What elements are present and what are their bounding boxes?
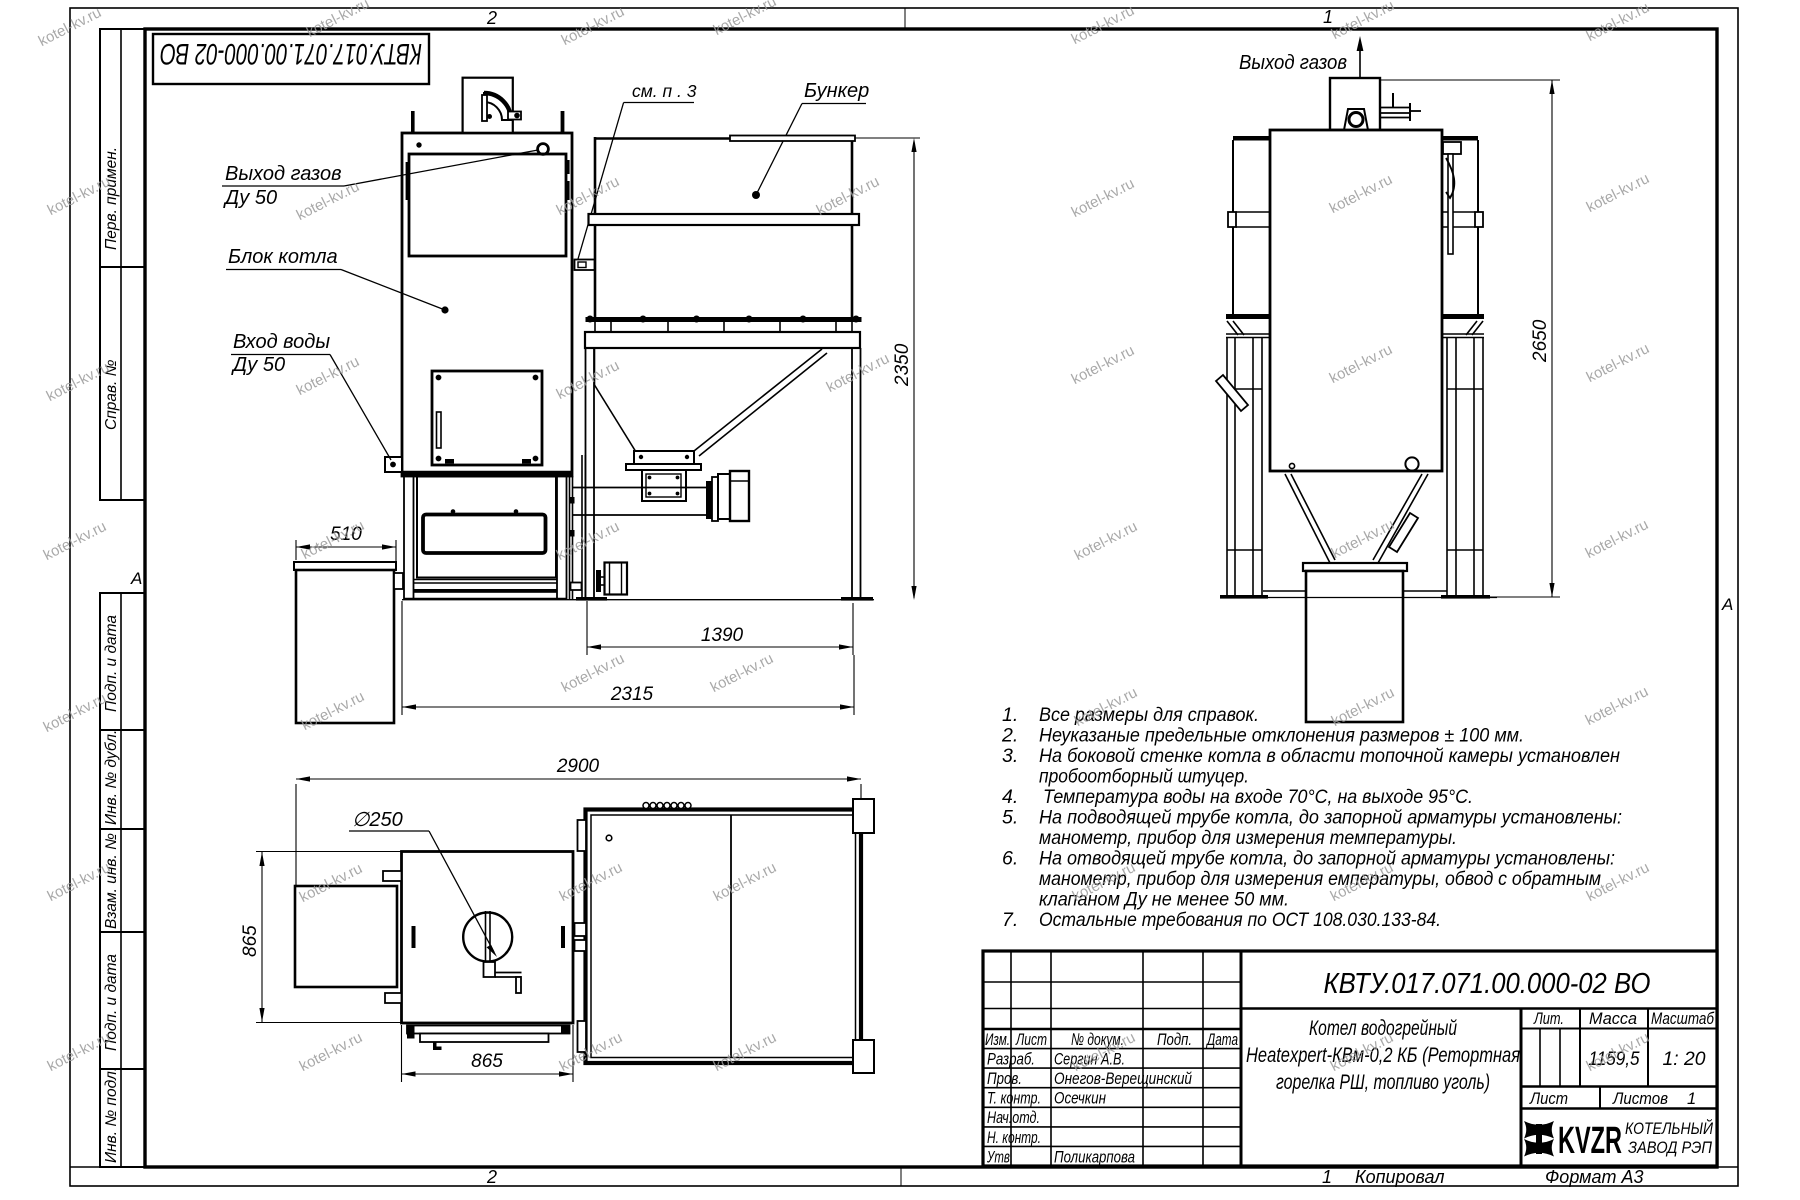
svg-text:Инв. № дубл.: Инв. № дубл. [103,730,120,825]
svg-text:ЗАВОД РЭП: ЗАВОД РЭП [1628,1138,1713,1157]
svg-text:865: 865 [471,1051,503,1072]
svg-text:865: 865 [240,925,261,957]
svg-text:Т. контр.: Т. контр. [987,1089,1041,1108]
svg-text:1: 1 [1687,1090,1696,1108]
svg-text:KVZR: KVZR [1558,1120,1622,1162]
svg-text:Формат А3: Формат А3 [1545,1167,1644,1187]
svg-text:Выход газов: Выход газов [1239,52,1347,74]
svg-text:горелка РШ, топливо уголь): горелка РШ, топливо уголь) [1276,1071,1490,1094]
svg-text:2: 2 [486,8,497,28]
svg-text:Пров.: Пров. [987,1069,1022,1088]
svg-text:Бункер: Бункер [804,80,869,102]
svg-text:Поликарпова: Поликарпова [1054,1147,1135,1166]
svg-text:Копировал: Копировал [1355,1167,1445,1187]
svg-text:Перв. примен.: Перв. примен. [103,147,120,250]
svg-text:Лит.: Лит. [1533,1010,1564,1028]
svg-text:2350: 2350 [892,343,913,387]
svg-text:Температура воды на входе 70°С: Температура воды на входе 70°С, на выход… [1043,786,1473,808]
svg-text:Дата: Дата [1206,1030,1238,1049]
svg-text:Ду 50: Ду 50 [223,187,277,209]
svg-text:А: А [130,569,142,588]
svg-text:На боковой стенке котла в обла: На боковой стенке котла в области топочн… [1039,745,1620,767]
svg-text:КВТУ.017.071.00.000-02 ВО: КВТУ.017.071.00.000-02 ВО [1324,968,1651,1000]
svg-text:КВТУ.017.071.00.000-02 ВО: КВТУ.017.071.00.000-02 ВО [160,37,422,70]
svg-text:см. п . 3: см. п . 3 [632,81,697,101]
svg-text:Остальные требования по ОСТ 10: Остальные требования по ОСТ 108.030.133-… [1039,909,1441,931]
svg-text:пробоотборный штуцер.: пробоотборный штуцер. [1039,766,1249,788]
svg-text:Нач.отд.: Нач.отд. [987,1108,1040,1127]
svg-text:6.: 6. [1002,848,1018,870]
svg-text:2.: 2. [1001,725,1018,747]
svg-text:Разраб.: Разраб. [987,1050,1035,1069]
svg-text:На подводящей трубе котла, до: На подводящей трубе котла, до запорной а… [1039,807,1622,829]
svg-text:Листов: Листов [1612,1090,1668,1108]
svg-text:Взам. инв. №: Взам. инв. № [103,833,120,929]
svg-text:Ду 50: Ду 50 [231,354,285,376]
svg-text:Н. контр.: Н. контр. [987,1128,1041,1147]
svg-text:КОТЕЛЬНЫЙ: КОТЕЛЬНЫЙ [1625,1118,1714,1138]
svg-text:Неуказаные предельные отклонен: Неуказаные предельные отклонения размеро… [1039,725,1524,747]
svg-text:2: 2 [486,1167,497,1187]
svg-text:5.: 5. [1002,807,1018,829]
svg-text:1.: 1. [1002,704,1018,726]
svg-text:Масштаб: Масштаб [1651,1010,1715,1028]
svg-text:А: А [1721,595,1733,614]
svg-text:1: 1 [1323,7,1333,27]
svg-text:∅250: ∅250 [352,809,403,831]
svg-text:2900: 2900 [556,756,600,777]
svg-text:Выход газов: Выход газов [225,163,342,185]
svg-text:2315: 2315 [610,684,654,705]
svg-text:Блок котла: Блок котла [228,246,338,268]
svg-text:2650: 2650 [1530,319,1551,363]
svg-text:Вход воды: Вход воды [233,331,330,353]
svg-text:Подп. и дата: Подп. и дата [103,615,120,712]
svg-text:3.: 3. [1002,745,1018,767]
svg-text:1: 20: 1: 20 [1663,1049,1706,1070]
svg-text:7.: 7. [1002,909,1018,931]
svg-text:Лист: Лист [1015,1030,1047,1049]
svg-text:манометр, прибор для измерения: манометр, прибор для измерения температу… [1039,827,1457,849]
svg-text:1390: 1390 [701,625,744,646]
svg-text:Масса: Масса [1589,1010,1637,1028]
svg-text:Лист: Лист [1529,1090,1568,1108]
svg-text:1: 1 [1322,1167,1332,1187]
svg-text:4.: 4. [1002,786,1018,808]
svg-text:Подп.: Подп. [1157,1030,1192,1049]
svg-text:Изм.: Изм. [985,1030,1010,1049]
svg-text:Осечкин: Осечкин [1054,1089,1107,1108]
svg-text:Инв. № подл.: Инв. № подл. [103,1067,120,1163]
svg-text:Утв.: Утв. [986,1147,1013,1166]
